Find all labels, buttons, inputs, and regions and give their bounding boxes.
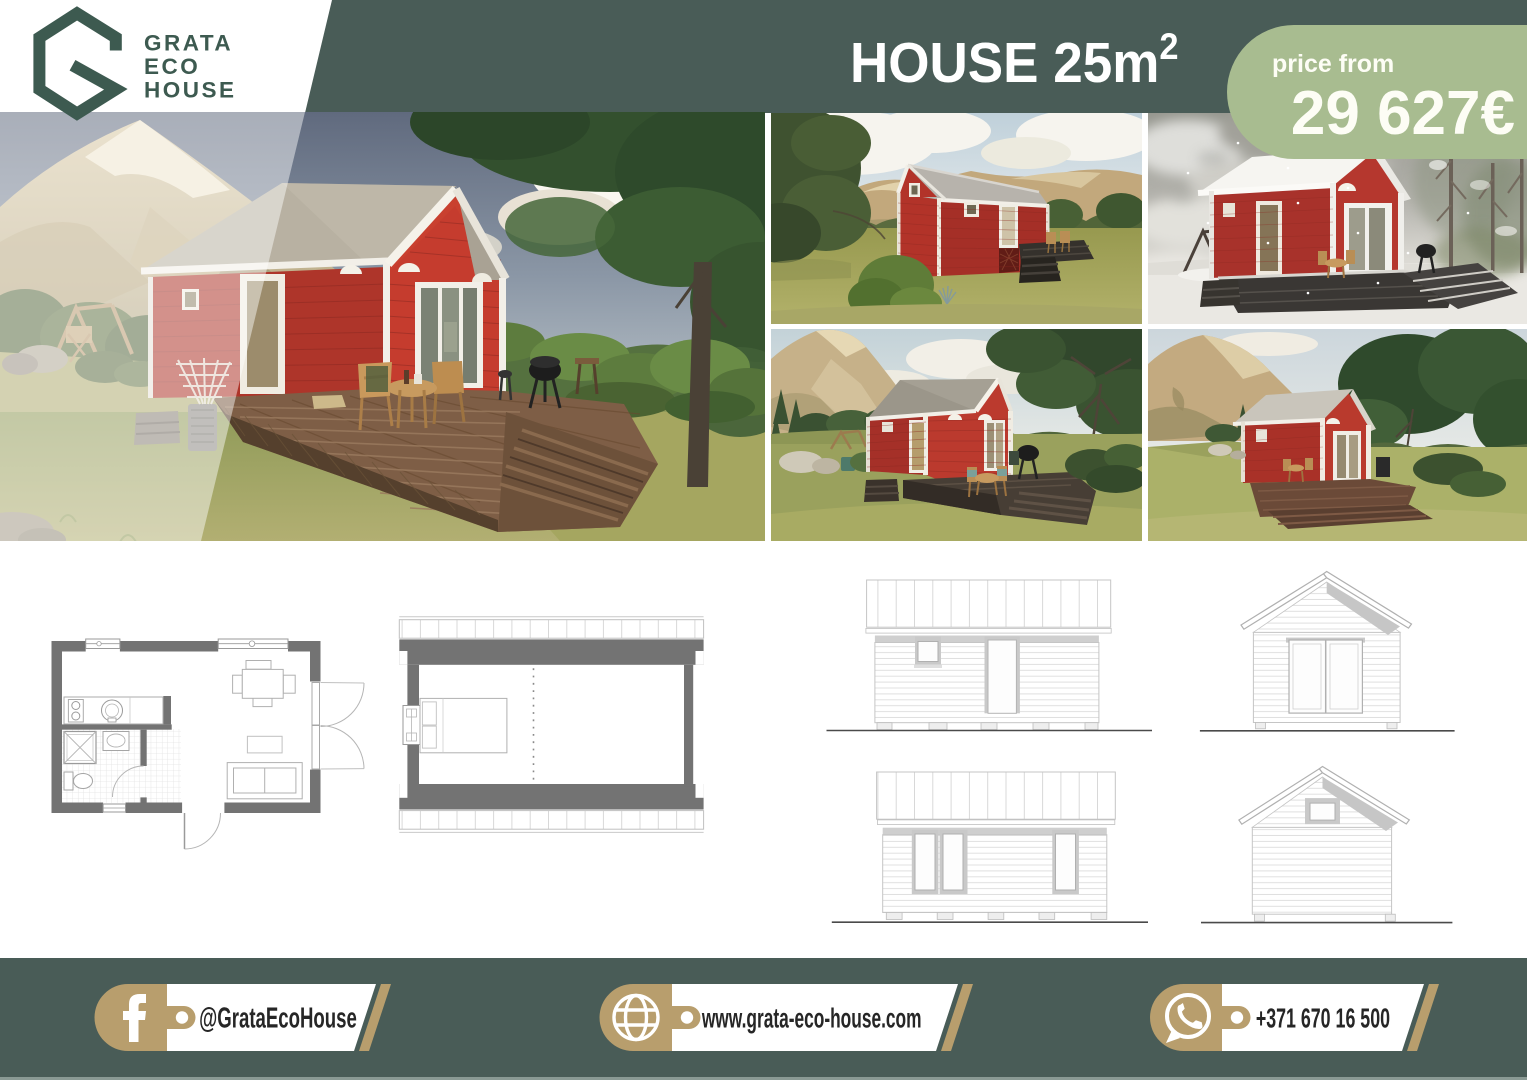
svg-text:GRATA: GRATA <box>144 31 233 56</box>
svg-text:+371 670 16 500: +371 670 16 500 <box>1256 1003 1390 1034</box>
svg-text:www.grata-eco-house.com: www.grata-eco-house.com <box>701 1002 921 1033</box>
svg-text:@GrataEcoHouse: @GrataEcoHouse <box>199 1003 357 1035</box>
svg-text:HOUSE: HOUSE <box>144 78 237 103</box>
svg-text:ECO: ECO <box>144 54 200 79</box>
